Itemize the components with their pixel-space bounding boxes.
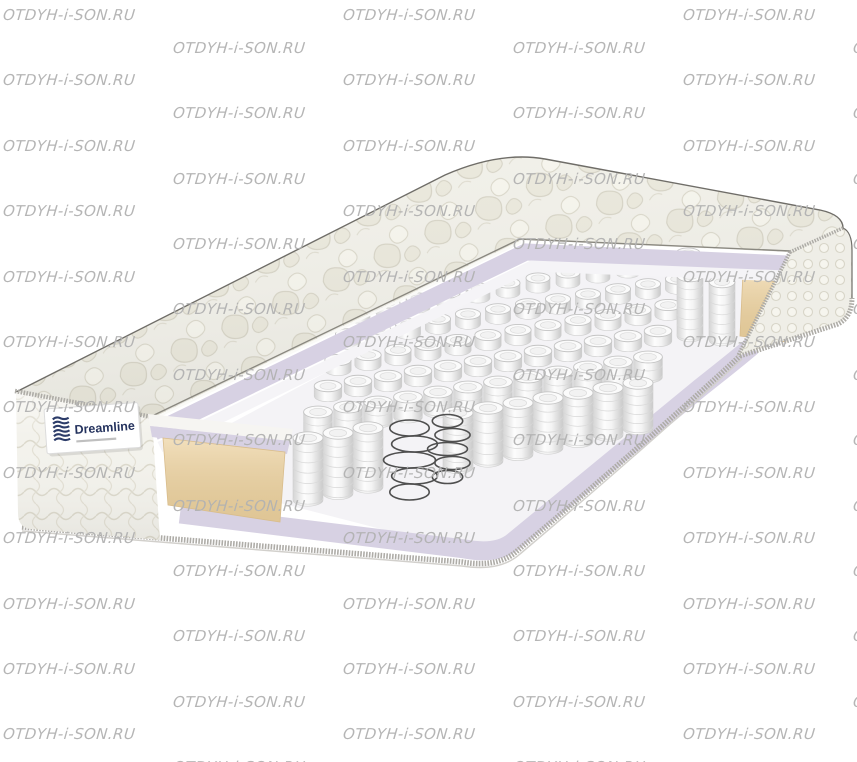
spring-top-inner [400,393,417,400]
pocket-spring [605,284,630,305]
pocket-spring [677,270,703,342]
spring-top-inner [500,353,516,360]
spring-body [593,388,623,441]
spring-top-inner [430,388,447,395]
spring-top-inner [620,333,636,340]
spring-top-inner [450,337,465,344]
spring-body [563,393,593,448]
pocket-spring [563,387,593,448]
spring-top-inner [714,279,729,286]
spring-top-inner [520,373,537,380]
spring-top-inner [479,404,496,411]
spring-top-inner [299,434,316,441]
spring-top-inner [491,306,506,312]
spring-top-inner [570,317,585,324]
spring-top-inner [629,379,646,386]
pocket-spring [505,324,531,345]
spring-top-inner [611,286,626,292]
spring-top-inner [410,368,426,375]
pocket-spring [545,294,570,315]
pocket-spring [595,309,621,330]
spring-top-inner [590,338,606,345]
pocket-spring [353,422,383,493]
spring-top-inner [600,312,615,319]
spring-top-inner [509,399,526,406]
pocket-spring [475,329,501,350]
spring-top-inner [480,332,495,339]
pocket-spring [625,304,651,325]
pocket-spring [623,377,653,435]
pocket-spring [515,299,540,320]
pocket-spring [344,375,372,397]
pocket-spring [385,344,411,365]
spring-top-inner [359,424,376,431]
mattress-cutaway-illustration: Dreamline [0,0,857,762]
spring-top-inner [370,398,387,405]
pocket-spring [374,370,402,392]
pocket-spring [709,276,735,346]
spring-body [293,438,323,506]
spring-top-inner [581,291,596,297]
spring-top-inner [641,281,656,287]
spring-top-inner [329,429,346,436]
spring-top-inner [510,327,525,334]
pocket-spring [565,314,591,335]
spring-body [709,282,735,346]
spring-top-inner [350,378,366,385]
pocket-spring [554,340,582,362]
spring-top-inner [630,307,645,314]
spring-top-inner [640,353,657,360]
spring-top-inner [550,368,567,375]
brand-label: Dreamline [44,402,143,457]
spring-top-inner [310,408,327,415]
spring-body [323,433,353,500]
spring-top-inner [470,358,486,365]
pocket-spring [524,345,552,367]
spring-body [533,398,563,454]
pocket-spring [323,427,353,500]
pocket-spring [445,334,471,355]
pocket-spring [535,319,561,340]
spring-body [473,408,503,467]
pocket-spring [434,360,462,382]
spring-top-inner [320,383,336,390]
spring-top-inner [461,311,476,317]
pocket-spring [473,402,503,467]
spring-top-inner [660,302,675,309]
spring-top-inner [521,301,536,307]
spring-body [353,428,383,493]
spring-top-inner [551,296,566,302]
spring-top-inner [560,343,576,350]
spring-body [677,276,703,342]
product-image-canvas: Dreamline OTDYH-i-SON.RUOTDYH-i-SON.RUOT… [0,0,857,762]
spring-top-inner [540,322,555,329]
spring-top-inner [490,378,507,385]
spring-top-inner [569,389,586,396]
pocket-spring [494,350,522,372]
pocket-spring [526,273,550,293]
pocket-spring [584,335,612,357]
spring-top-inner [580,363,597,370]
pocket-spring [635,279,660,300]
pocket-spring [533,392,563,454]
pocket-spring [644,325,672,347]
spring-top-inner [420,342,435,349]
pocket-spring [404,365,432,387]
pocket-spring [455,309,480,330]
spring-top-inner [531,275,545,281]
spring-body [623,383,653,435]
spring-top-inner [610,358,627,365]
pocket-spring [503,397,533,461]
spring-top-inner [390,347,405,354]
spring-top-inner [650,328,666,335]
pocket-spring [485,304,510,325]
spring-top-inner [340,403,357,410]
spring-top-inner [530,348,546,355]
pocket-spring [415,339,441,360]
spring-top-inner [380,373,396,380]
pocket-spring [464,355,492,377]
spring-top-inner [539,394,556,401]
pocket-spring [314,380,342,402]
pocket-spring [575,289,600,310]
pocket-spring [614,330,642,352]
pocket-spring [394,391,423,423]
pocket-spring [293,432,323,506]
spring-top-inner [440,363,456,370]
spring-top-inner [599,384,616,391]
pocket-spring [593,382,623,441]
spring-top-inner [460,383,477,390]
spring-body [503,403,533,461]
